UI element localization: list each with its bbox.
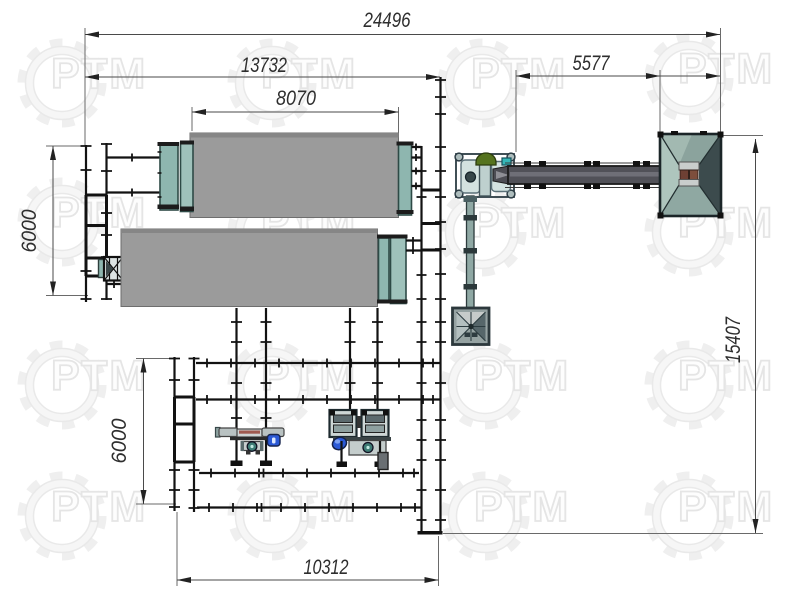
svg-text:24496: 24496 [363,9,411,32]
svg-text:13732: 13732 [241,54,287,77]
svg-text:6000: 6000 [18,209,41,252]
svg-text:5577: 5577 [573,52,611,75]
svg-text:15407: 15407 [722,316,745,363]
svg-text:10312: 10312 [304,556,349,579]
svg-text:6000: 6000 [108,418,131,463]
svg-text:8070: 8070 [276,87,316,110]
